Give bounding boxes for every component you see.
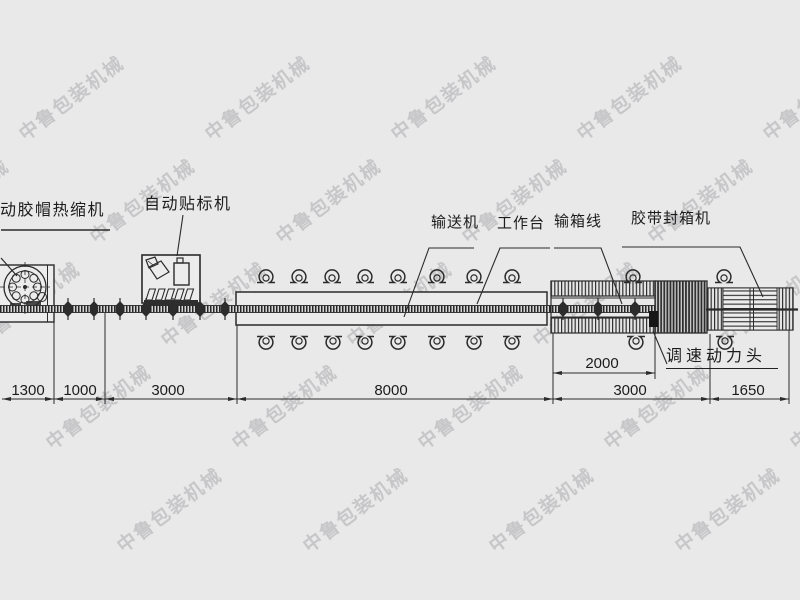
omega-icon <box>356 270 374 283</box>
dimension-arrow <box>553 397 562 401</box>
labeling-machine <box>142 255 200 306</box>
omega-icon <box>465 337 483 350</box>
dimension-arrow <box>780 397 789 401</box>
dimension-arrow <box>701 397 710 401</box>
spindle-icon <box>64 298 72 320</box>
dimension-arrow <box>553 371 562 375</box>
label-power-head: 调速动力头 <box>666 348 778 369</box>
omega-icon <box>290 337 308 350</box>
labeler-leader <box>177 215 183 256</box>
dim-1650: 1650 <box>726 383 770 398</box>
omega-icon <box>324 337 342 350</box>
omega-icon <box>428 337 446 350</box>
omega-icon <box>624 270 642 283</box>
omega-icon <box>389 337 407 350</box>
label-sealer: 胶带封箱机 <box>631 211 711 228</box>
label-labeling-machine: 自动贴标机 <box>144 196 232 214</box>
omega-icon <box>465 270 483 283</box>
omega-icon <box>290 270 308 283</box>
omega-icon <box>428 270 446 283</box>
engineering-drawing-canvas: 中鲁包装机械中鲁包装机械中鲁包装机械中鲁包装机械中鲁包装机械中鲁包装机械中鲁包装… <box>0 0 800 600</box>
production-line-diagram <box>0 0 800 600</box>
dimension-arrow <box>237 397 246 401</box>
omega-icon <box>389 270 407 283</box>
omega-icon <box>627 337 645 350</box>
label-box-line: 输箱线 <box>554 214 602 231</box>
label-workbench: 工作台 <box>497 216 545 233</box>
omega-icon <box>323 270 341 283</box>
omega-icon <box>503 337 521 350</box>
omega-icon <box>503 270 521 283</box>
dimension-arrow <box>544 397 553 401</box>
spindle-icon <box>90 298 98 320</box>
label-shrink-machine: 动胶帽热缩机 <box>0 202 105 220</box>
carton-sealer <box>706 288 798 330</box>
label-conveyor: 输送机 <box>431 215 479 232</box>
omega-icon <box>356 337 374 350</box>
dim-2000: 2000 <box>580 356 624 371</box>
dimension-arrow <box>646 371 655 375</box>
dimension-arrow <box>105 397 114 401</box>
omega-icon <box>257 337 275 350</box>
power-head <box>649 281 707 333</box>
chain-conveyor-band <box>0 306 655 313</box>
spindle-icon <box>116 298 124 320</box>
dim-3000-right: 3000 <box>608 383 652 398</box>
dim-3000-left: 3000 <box>146 383 190 398</box>
dim-8000: 8000 <box>369 383 413 398</box>
omega-icon <box>715 270 733 283</box>
spindle-icon <box>221 298 229 320</box>
dim-1000: 1000 <box>58 383 102 398</box>
dim-1300: 1300 <box>6 383 50 398</box>
dimension-arrow <box>228 397 237 401</box>
omega-icon <box>257 270 275 283</box>
dimension-arrow <box>710 397 719 401</box>
